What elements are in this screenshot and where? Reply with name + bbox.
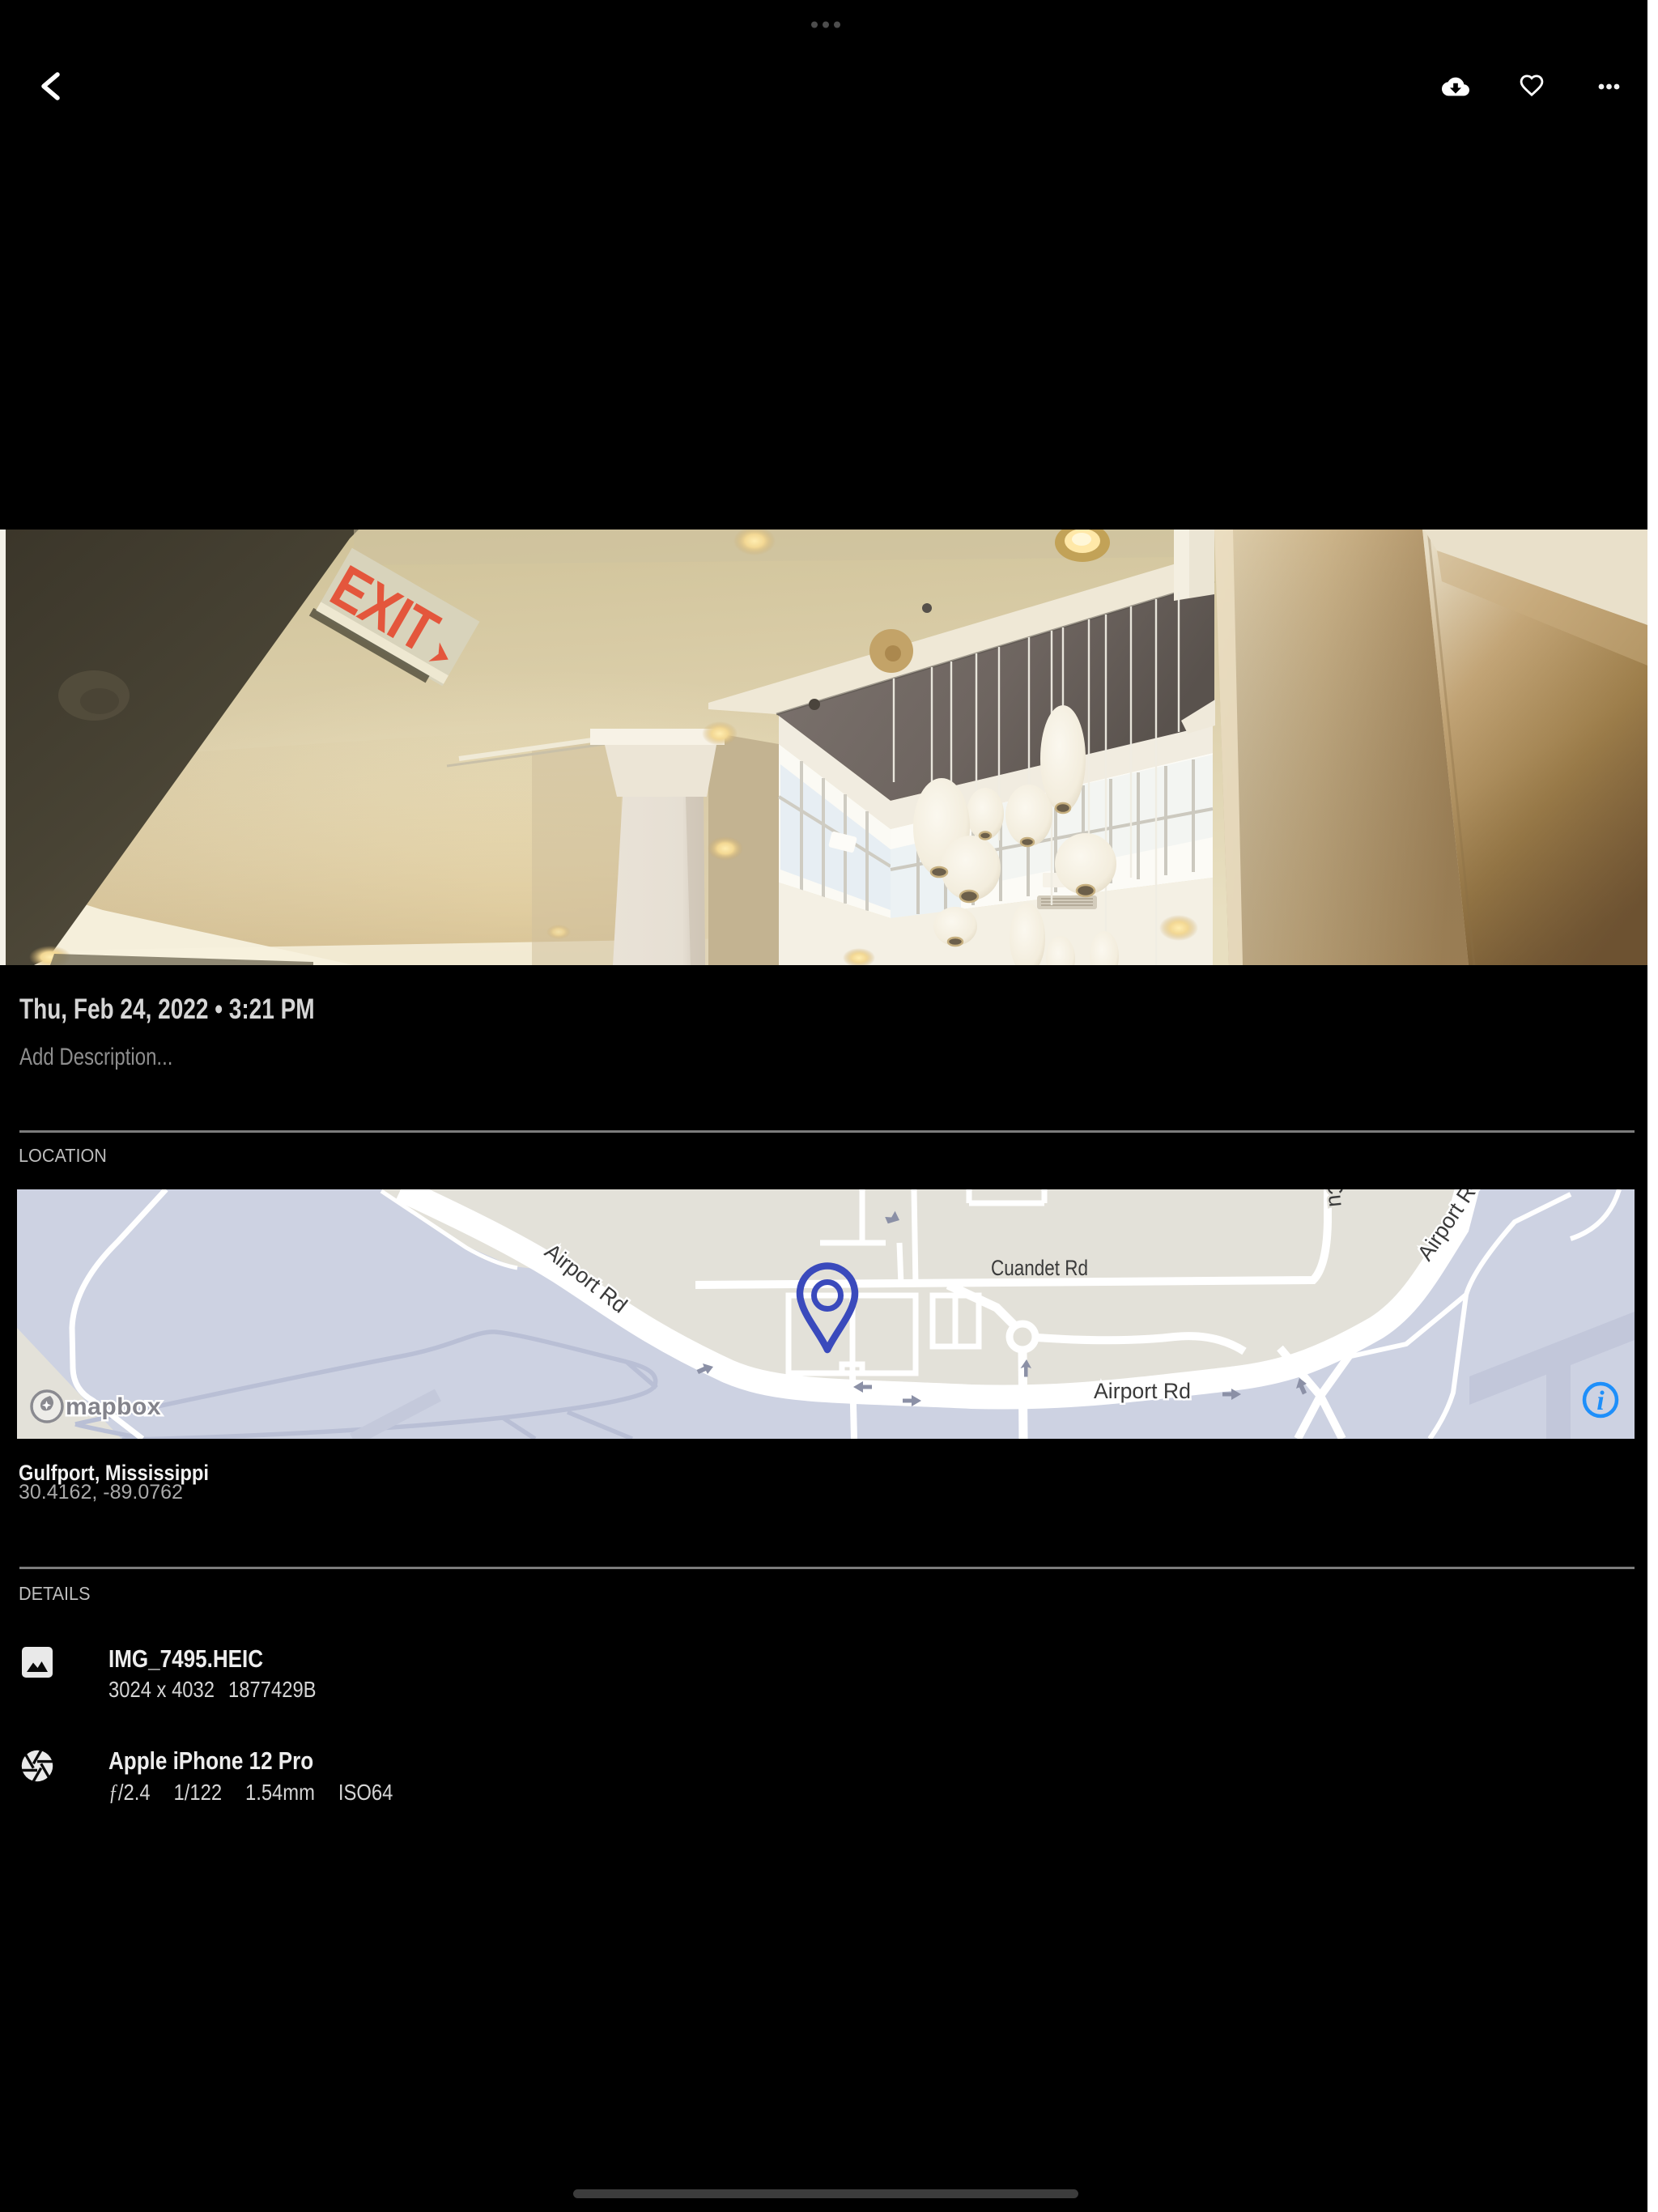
svg-text:mapbox: mapbox xyxy=(66,1393,161,1420)
svg-text:Cu: Cu xyxy=(1322,1189,1349,1208)
svg-text:Airport Rd: Airport Rd xyxy=(1094,1379,1191,1403)
svg-text:i: i xyxy=(1596,1386,1605,1416)
svg-text:Cuandet Rd: Cuandet Rd xyxy=(991,1256,1088,1280)
